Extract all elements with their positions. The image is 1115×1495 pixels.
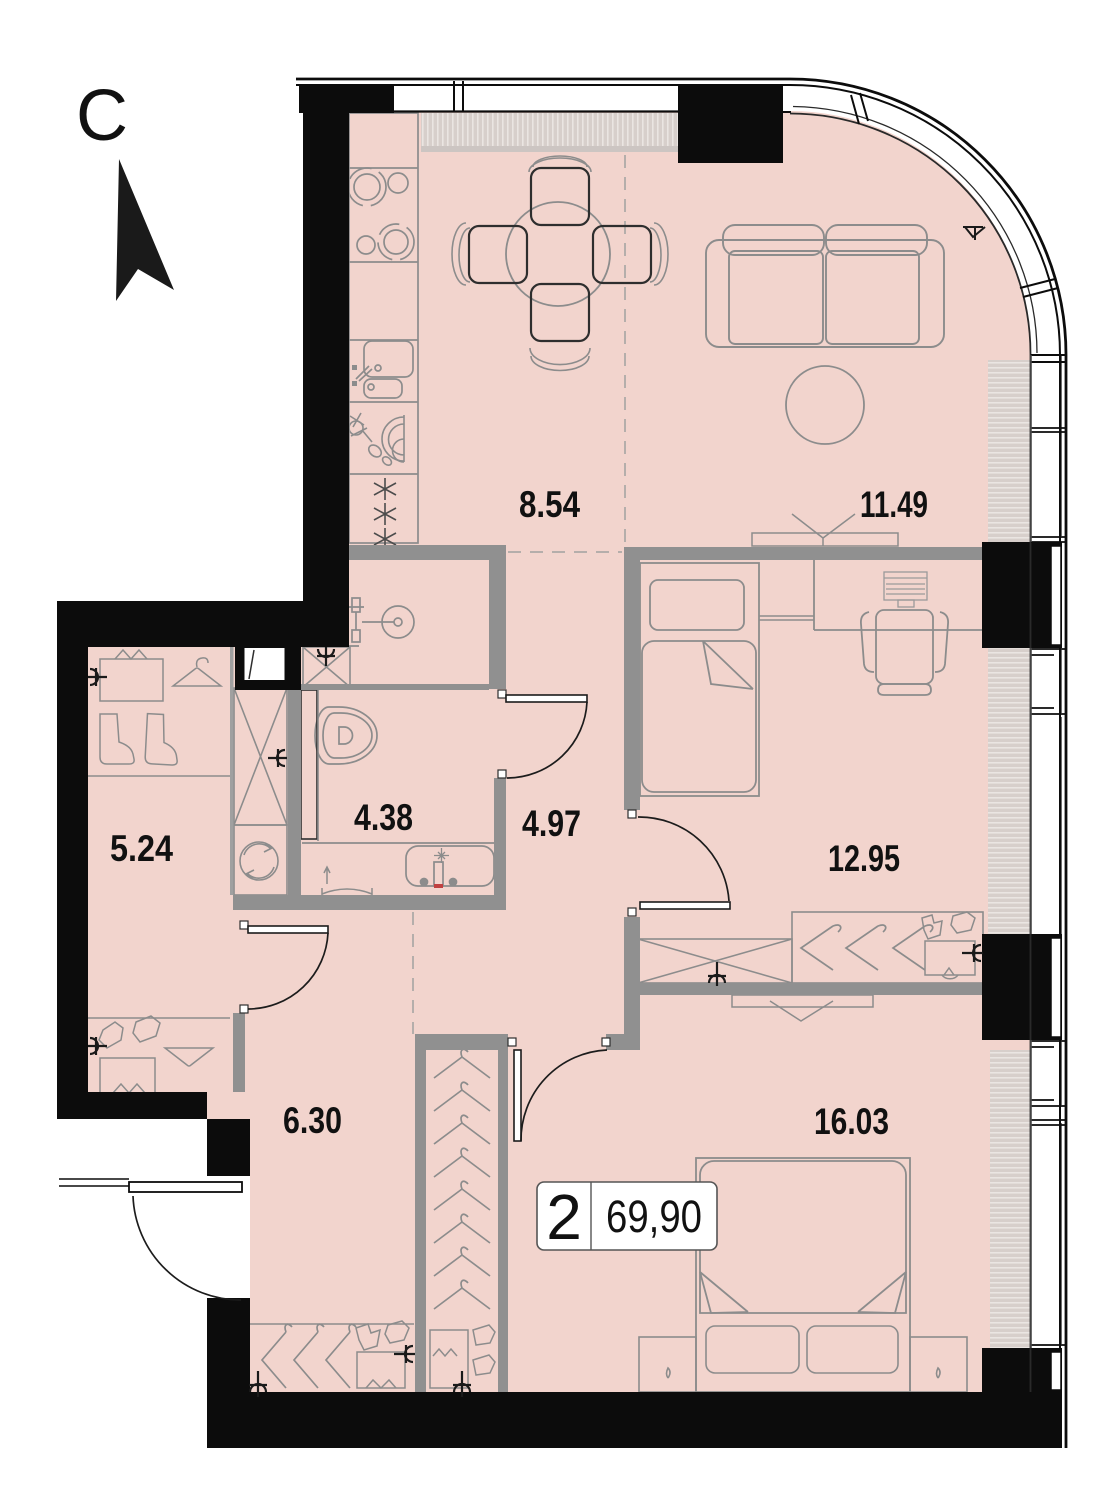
svg-text:5.24: 5.24	[110, 828, 173, 869]
svg-text:6.30: 6.30	[283, 1100, 342, 1141]
svg-text:4.38: 4.38	[354, 797, 413, 838]
svg-text:8.54: 8.54	[519, 484, 580, 525]
svg-text:12.95: 12.95	[828, 838, 900, 879]
svg-text:С: С	[76, 76, 128, 156]
svg-text:11.49: 11.49	[860, 484, 928, 525]
svg-text:69,90: 69,90	[606, 1191, 702, 1242]
svg-text:2: 2	[546, 1181, 582, 1253]
svg-text:4.97: 4.97	[522, 803, 581, 844]
svg-text:16.03: 16.03	[814, 1101, 889, 1142]
